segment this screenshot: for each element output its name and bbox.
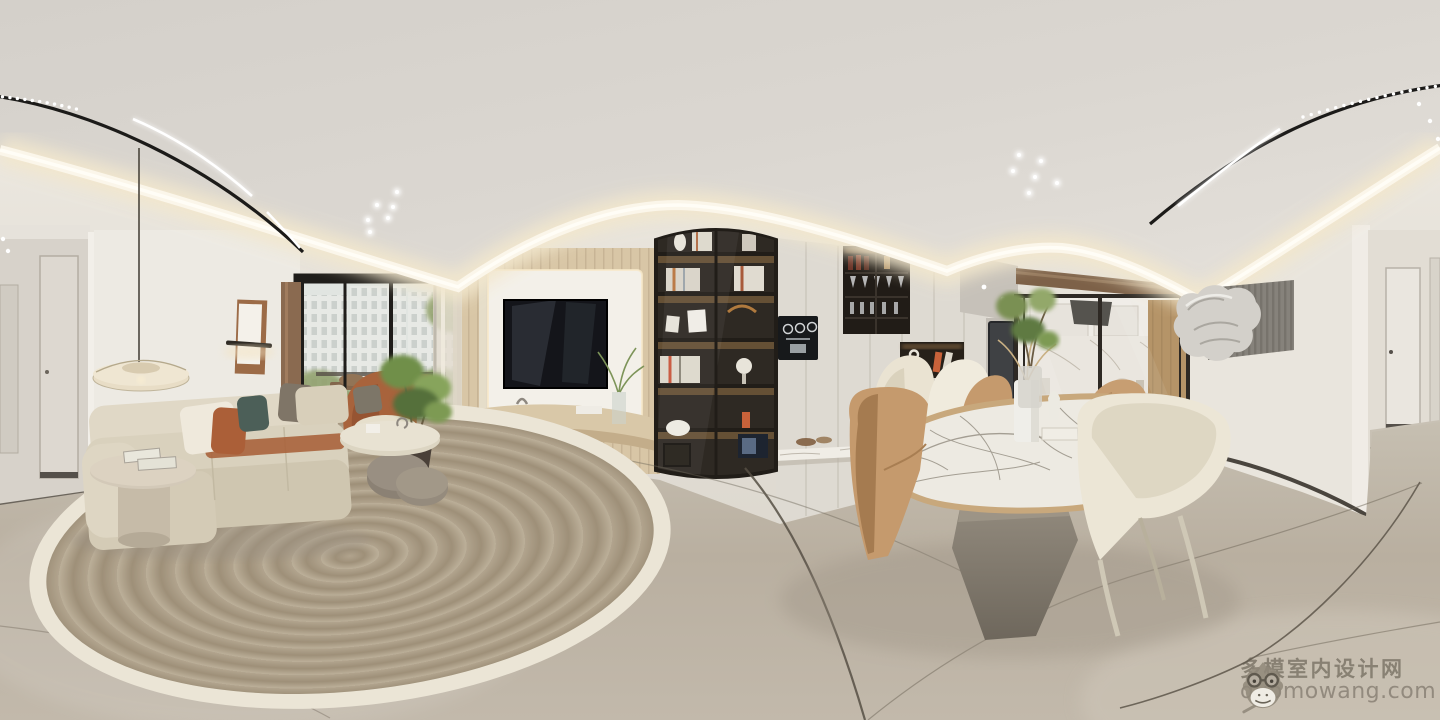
- door-handle: [45, 370, 49, 374]
- panorama-scene: [0, 0, 1440, 720]
- table-decor: [366, 424, 380, 433]
- watermark: 多模室内设计网 duomowang.com: [1240, 659, 1436, 703]
- range-hood: [1070, 300, 1112, 326]
- console-books: [576, 406, 602, 414]
- gorilla-logo-icon: [1240, 659, 1286, 715]
- white-sculpture: [1048, 391, 1060, 420]
- panorama-screenshot: 多模室内设计网 duomowang.com: [0, 0, 1440, 720]
- corridor-door: [40, 256, 78, 478]
- armchair-pillow: [352, 384, 382, 414]
- glass-box: [138, 457, 177, 471]
- bookshelf: [656, 224, 776, 480]
- glass-vase: [612, 392, 626, 424]
- hallway-door: [1386, 268, 1420, 428]
